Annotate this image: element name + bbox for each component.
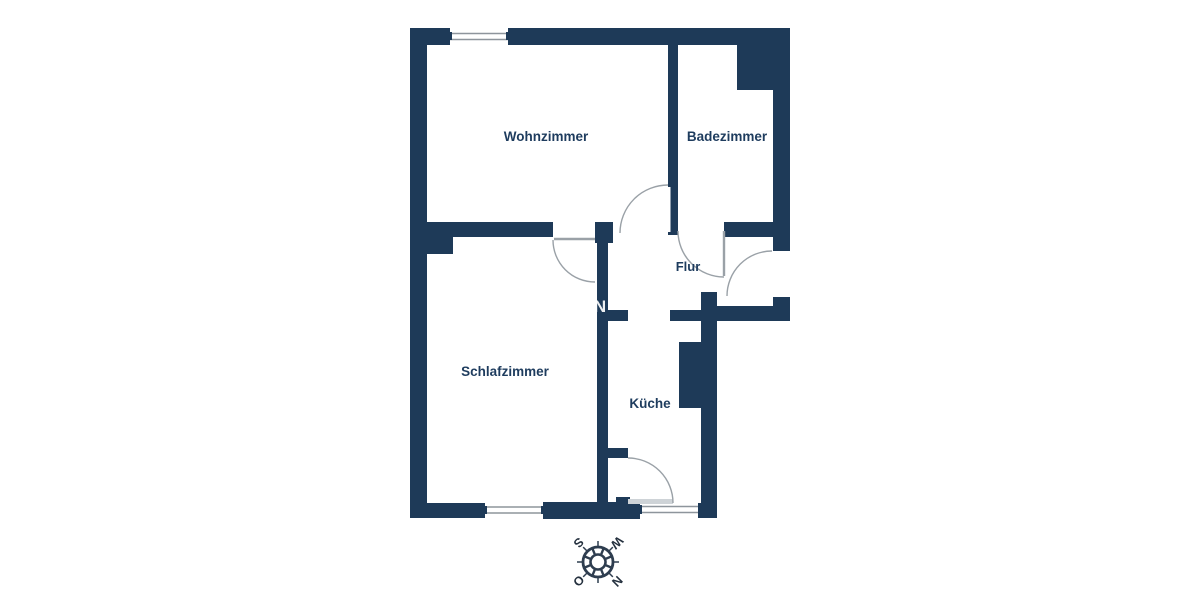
window-bedroom — [482, 503, 546, 518]
window-void — [485, 503, 543, 518]
watermark-letter: N — [594, 297, 606, 316]
window-void — [450, 28, 508, 45]
wall-left — [410, 28, 427, 518]
kitchen-shaft — [679, 342, 717, 408]
door-living-hall — [620, 185, 671, 233]
room-label-wohnzimmer: Wohnzimmer — [504, 129, 589, 144]
wall-right-upper — [773, 28, 790, 251]
bedroom-corner-step — [427, 237, 453, 254]
compass-letter-south: S — [571, 535, 587, 551]
wall-bottom-left — [410, 503, 485, 518]
room-label-flur: Flur — [676, 259, 701, 274]
wall-kitchen-right-upper — [701, 292, 717, 342]
kitchen-doorway-stub-right — [670, 310, 701, 321]
compass-rose: N O S W — [551, 514, 645, 600]
kitchen-balcony-threshold — [637, 503, 698, 518]
room-label-badezimmer: Badezimmer — [687, 129, 768, 144]
wall-divider-bedroom-kitchen — [597, 243, 608, 503]
door-bedroom — [553, 239, 595, 282]
window-void — [640, 503, 698, 518]
door-leaf — [667, 187, 671, 232]
bedroom-door-jamb — [595, 222, 613, 243]
wall-top-main — [508, 28, 790, 45]
wall-living-bedroom — [410, 222, 553, 237]
door-swing-arc — [620, 185, 668, 233]
wall-bottom-mid — [543, 502, 640, 519]
floorplan-canvas: Wohnzimmer Badezimmer Flur Schlafzimmer … — [0, 0, 1200, 600]
window-cap — [541, 506, 546, 514]
door-leaf — [628, 499, 673, 504]
window-cap — [506, 32, 511, 40]
door-kitchen — [628, 458, 673, 504]
window-cap — [637, 505, 642, 514]
wall-bath-bottom — [724, 222, 775, 237]
room-label-kueche: Küche — [629, 396, 671, 411]
kitchen-doorway-stub-left — [608, 310, 628, 321]
window-cap — [482, 506, 487, 514]
wall-entry-bottom — [708, 306, 790, 321]
room-label-schlafzimmer: Schlafzimmer — [461, 364, 550, 379]
kitchen-door-stub — [608, 448, 628, 458]
door-swing-arc — [628, 458, 673, 503]
door-swing-arc — [727, 251, 772, 296]
window-top — [447, 28, 511, 45]
wall-kitchen-right-lower — [701, 408, 717, 518]
floorplan-drawing: Wohnzimmer Badezimmer Flur Schlafzimmer … — [0, 0, 1200, 600]
window-cap — [447, 32, 452, 40]
door-swing-arc — [553, 240, 595, 282]
wall-bottom-right — [698, 503, 717, 518]
kitchen-door-hinge-nub — [616, 497, 630, 503]
door-entrance — [727, 251, 772, 296]
bath-corner-shaft — [737, 45, 775, 90]
